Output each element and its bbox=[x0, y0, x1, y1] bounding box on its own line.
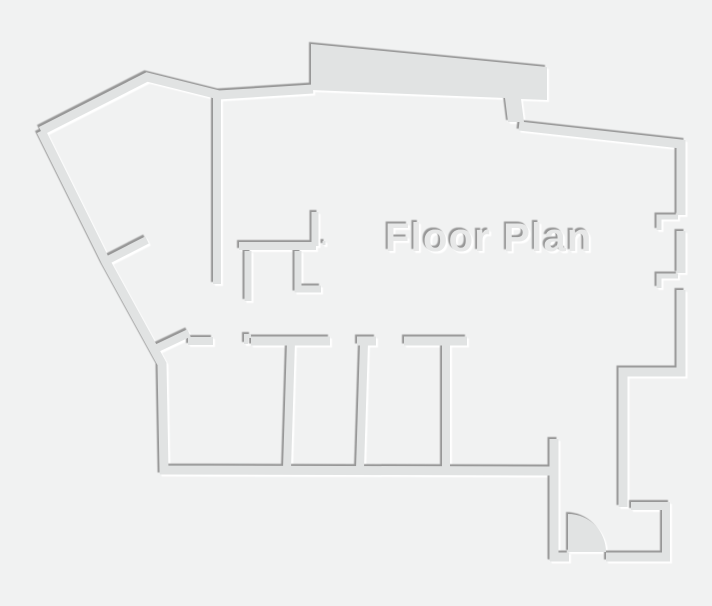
room-divider-1 bbox=[287, 341, 291, 469]
room2-top-jog bbox=[246, 336, 251, 344]
outer-left-and-bottom-wall bbox=[41, 131, 551, 471]
outer-top-right-wall bbox=[519, 126, 681, 215]
outer-right-low-step-wall bbox=[623, 290, 681, 507]
floor-plan-title: Floor Plan bbox=[385, 216, 593, 260]
hall-stub-down-right bbox=[298, 251, 321, 289]
window-jamb-lower bbox=[659, 276, 678, 288]
top-bump-wall bbox=[311, 44, 547, 122]
interior-diagonal-stub-upper bbox=[106, 240, 147, 261]
window-jamb-upper bbox=[659, 217, 678, 230]
floor-plan-svg: Floor Plan bbox=[0, 0, 712, 606]
floor-plan-canvas: Floor Plan bbox=[0, 0, 712, 606]
room-divider-2 bbox=[360, 343, 364, 469]
plan-group: Floor Plan bbox=[41, 44, 681, 561]
outer-top-left-wall bbox=[41, 77, 313, 131]
entry-door-swing bbox=[568, 514, 606, 552]
entry-closet-wall bbox=[631, 506, 666, 555]
